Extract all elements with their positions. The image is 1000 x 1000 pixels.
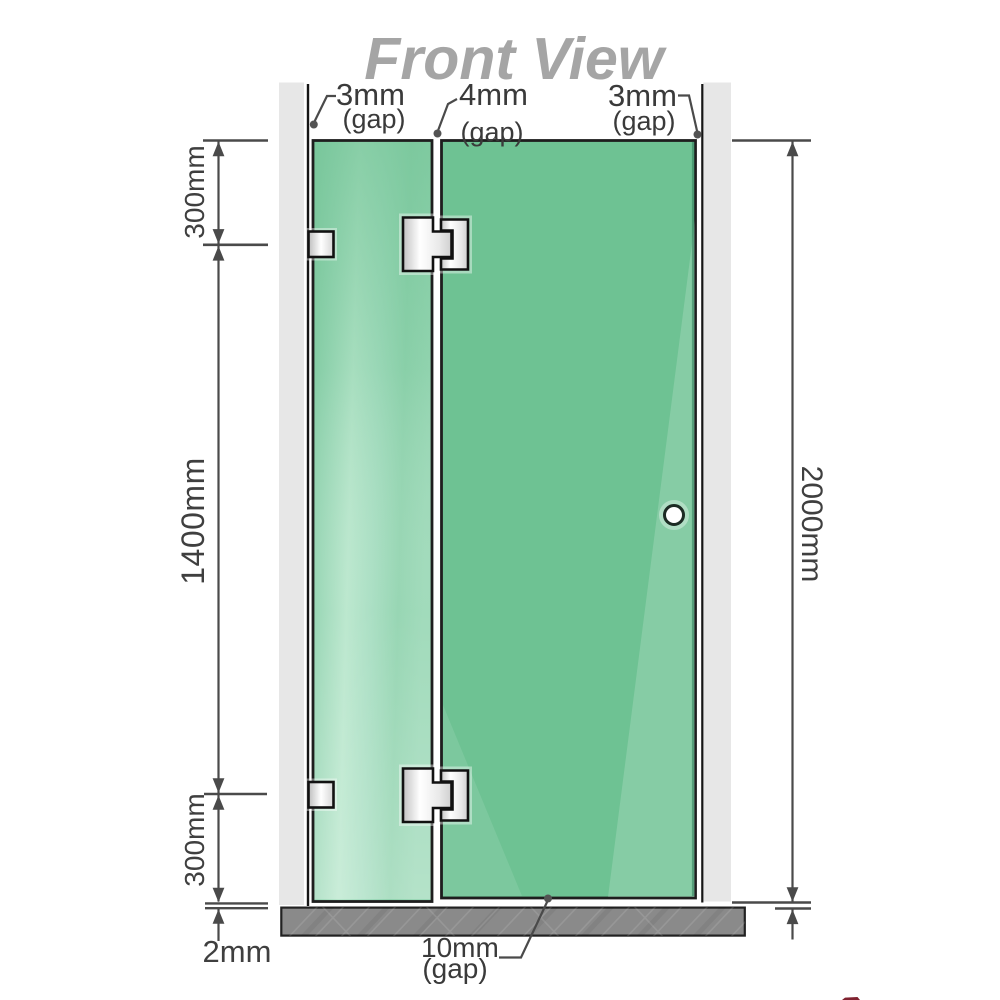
svg-text:(gap): (gap)	[422, 953, 487, 984]
svg-text:(gap): (gap)	[342, 104, 405, 134]
svg-text:(gap): (gap)	[612, 106, 675, 136]
svg-text:1400mm: 1400mm	[175, 457, 211, 585]
svg-text:300mm: 300mm	[179, 145, 210, 238]
svg-text:4mm: 4mm	[459, 77, 528, 112]
svg-text:300mm: 300mm	[179, 793, 210, 886]
svg-text:2mm: 2mm	[203, 934, 272, 969]
svg-text:(gap): (gap)	[460, 117, 523, 147]
svg-text:2000mm: 2000mm	[795, 466, 828, 583]
